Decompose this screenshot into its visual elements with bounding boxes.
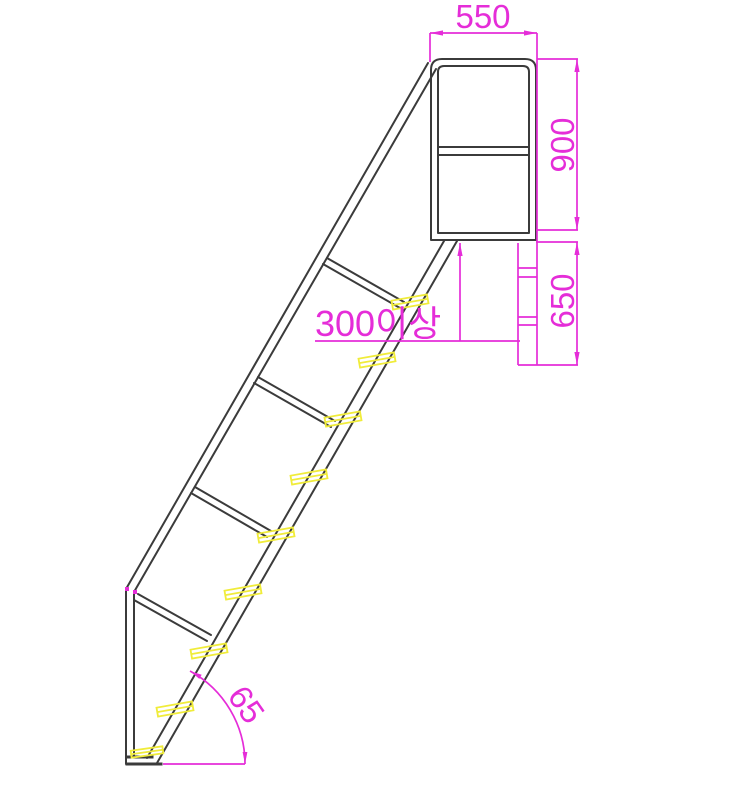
arrow-down-icon bbox=[574, 352, 579, 365]
dimension-650: 650 bbox=[518, 242, 581, 365]
arrow-left-icon bbox=[430, 30, 443, 35]
handrail-frame-inner bbox=[438, 66, 529, 233]
arrow-arc-bottom-icon bbox=[243, 752, 248, 764]
handrail-frame-outer bbox=[431, 59, 536, 240]
wall-post-detail bbox=[518, 243, 537, 365]
arrow-up-icon bbox=[457, 243, 462, 256]
dimension-clearance-300: 300이상 bbox=[315, 243, 520, 344]
left-rail-outer-line bbox=[126, 63, 428, 764]
tread-mark bbox=[358, 352, 395, 367]
arrow-down-icon bbox=[574, 217, 579, 230]
handrail-frame bbox=[431, 59, 536, 240]
dim-min-clearance-label: 300이상 bbox=[315, 303, 441, 344]
dim-lower-height-label: 650 bbox=[544, 273, 581, 328]
arrow-right-icon bbox=[524, 30, 537, 35]
drawing-canvas: 550 900 650 300이상 65 bbox=[0, 0, 743, 800]
dimension-550: 550 bbox=[430, 0, 537, 62]
arrow-up-icon bbox=[574, 242, 579, 255]
rung-2 bbox=[254, 377, 335, 427]
rung-3 bbox=[191, 487, 271, 537]
arrow-up-icon bbox=[574, 59, 579, 72]
dim-top-width-label: 550 bbox=[455, 0, 510, 35]
dim-angle-label: 65 bbox=[221, 679, 272, 730]
ladder-left-rail bbox=[126, 63, 436, 764]
rung-4 bbox=[134, 594, 211, 641]
dim-upper-height-label: 900 bbox=[544, 117, 581, 172]
arrow-arc-top-icon bbox=[189, 669, 202, 679]
left-rail-inner-line bbox=[134, 69, 436, 757]
ladder-technical-drawing: 550 900 650 300이상 65 bbox=[0, 0, 743, 800]
dimension-angle-65: 65 bbox=[163, 669, 272, 764]
